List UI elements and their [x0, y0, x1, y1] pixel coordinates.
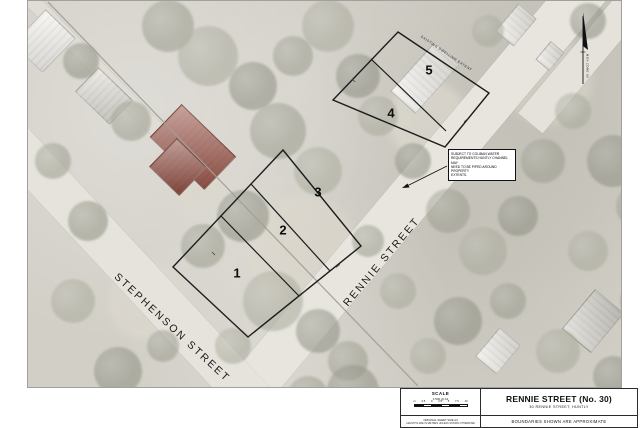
- tree: [352, 225, 384, 257]
- lot-number-3: 3: [314, 186, 321, 199]
- tree: [63, 43, 99, 79]
- tree: [181, 224, 225, 268]
- scale-bar: [414, 404, 468, 407]
- tree: [459, 227, 507, 275]
- scale-bar-segment: [432, 404, 441, 407]
- boundaries-disclaimer: BOUNDARIES SHOWN ARE APPROXIMATE: [481, 419, 637, 424]
- tree: [178, 26, 238, 86]
- aerial-photo: [27, 0, 622, 388]
- tree: [336, 54, 380, 98]
- tree: [68, 201, 108, 241]
- plan-title: RENNIE STREET (No. 30): [481, 394, 637, 404]
- lot-number-2: 2: [279, 224, 286, 237]
- tree: [35, 143, 71, 179]
- site-plan-canvas: 1 2 3 4 5 STEPHENSON STREET RENNIE STREE…: [0, 0, 642, 428]
- tree: [217, 190, 269, 242]
- tree: [521, 139, 565, 183]
- tree: [215, 328, 251, 364]
- fine-print: LENGTHS ARE IN METRES UNLESS SHOWN OTHER…: [401, 422, 480, 425]
- building-roof: [475, 327, 521, 374]
- tree: [111, 101, 151, 141]
- tree: [434, 297, 482, 345]
- scale-heading: SCALE: [401, 391, 480, 396]
- tree: [570, 3, 606, 39]
- scale-bar-segment: [414, 404, 423, 407]
- plan-subtitle: 30 RENNIE STREET, HUNTLY: [481, 405, 637, 409]
- lot-number-4: 4: [387, 107, 394, 120]
- tree: [426, 189, 470, 233]
- tree: [250, 103, 306, 159]
- scale-bar-segment: [423, 404, 432, 407]
- tree: [229, 62, 277, 110]
- scale-bar-segment: [459, 404, 468, 407]
- tree: [616, 184, 622, 228]
- tree: [555, 93, 591, 129]
- tree: [380, 273, 416, 309]
- north-arrow-label: MGA ZONE 55: [586, 54, 589, 78]
- tree: [395, 143, 431, 179]
- scale-bar-segment: [450, 404, 459, 407]
- lot-number-5: 5: [425, 64, 432, 77]
- scale-panel: SCALE 1:500 @ A3 m 2.5 0 2.5 5 7.5 10 OR…: [401, 389, 481, 428]
- scale-bar-segment: [441, 404, 450, 407]
- tree: [94, 347, 142, 388]
- title-panel: RENNIE STREET (No. 30) 30 RENNIE STREET,…: [481, 389, 637, 428]
- coliban-water-note: SUBJECT TO COLIBAN WATER REQUIREMENTS HU…: [448, 149, 516, 181]
- tree: [302, 0, 354, 52]
- tree: [536, 329, 580, 373]
- title-block: SCALE 1:500 @ A3 m 2.5 0 2.5 5 7.5 10 OR…: [400, 388, 638, 428]
- tree: [472, 15, 504, 47]
- tree: [490, 283, 526, 319]
- tree: [593, 356, 622, 388]
- lot-number-1: 1: [233, 267, 240, 280]
- tree: [410, 338, 446, 374]
- scale-bar-ticks: m 2.5 0 2.5 5 7.5 10: [401, 400, 480, 403]
- tree: [498, 196, 538, 236]
- tree: [288, 376, 328, 388]
- tree: [243, 271, 303, 331]
- tree: [587, 135, 622, 187]
- tree: [568, 231, 608, 271]
- tree: [51, 279, 95, 323]
